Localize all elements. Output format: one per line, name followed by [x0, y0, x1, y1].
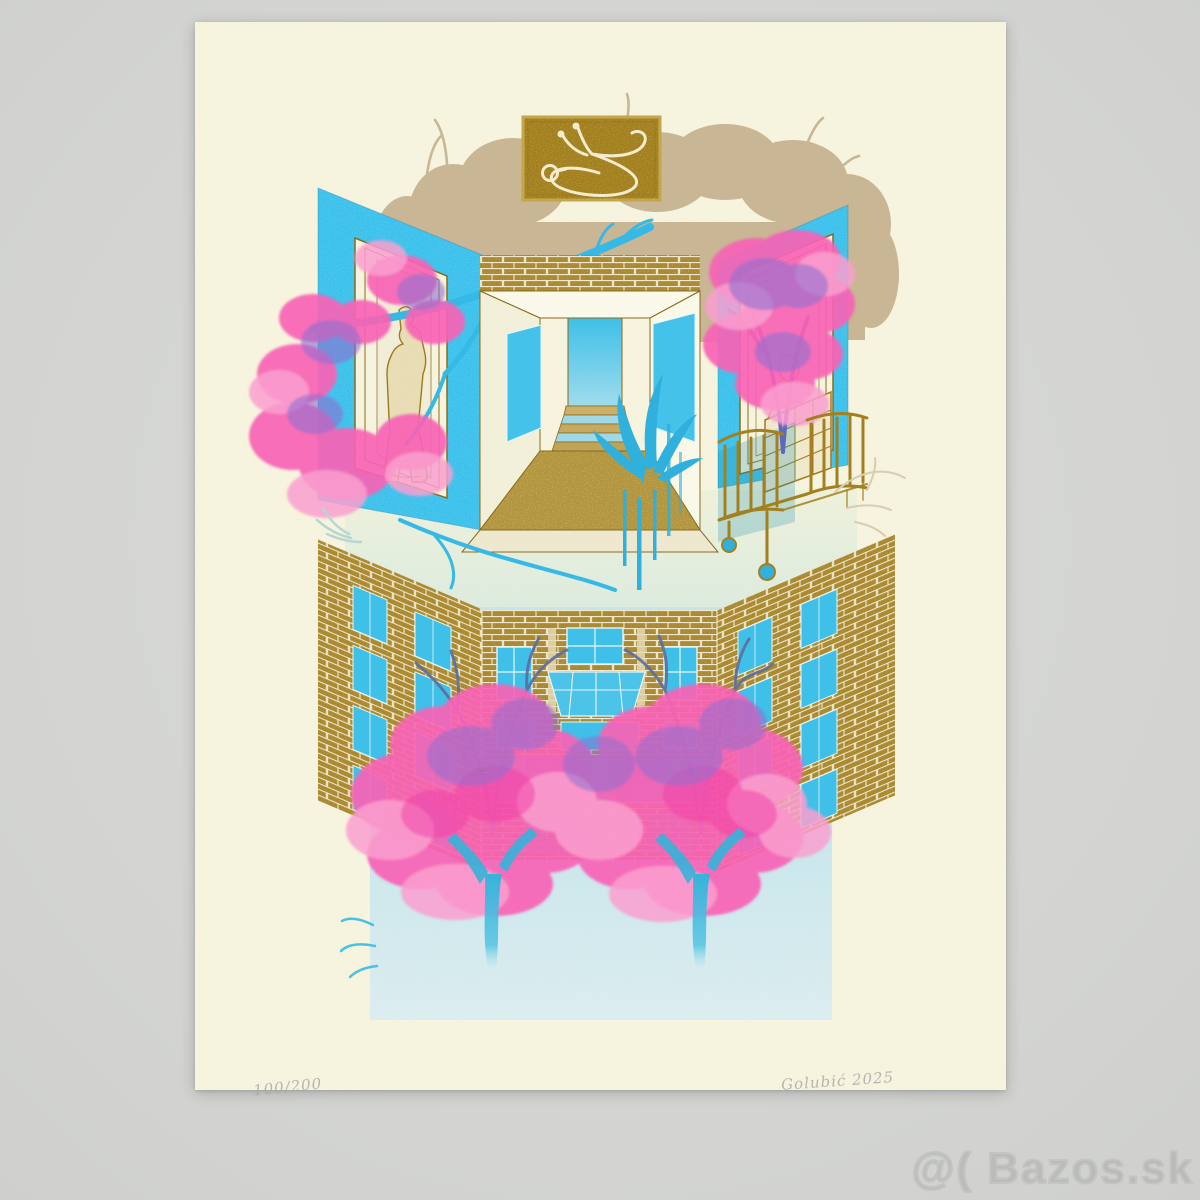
- print-grain: [195, 22, 1006, 1090]
- art-print-paper: 100/200 Golubić 2025: [195, 22, 1006, 1090]
- bazos-watermark: @( Bazos.sk: [911, 1144, 1194, 1194]
- photo-background: 100/200 Golubić 2025 @( Bazos.sk: [0, 0, 1200, 1200]
- print-artwork: [195, 22, 1006, 1090]
